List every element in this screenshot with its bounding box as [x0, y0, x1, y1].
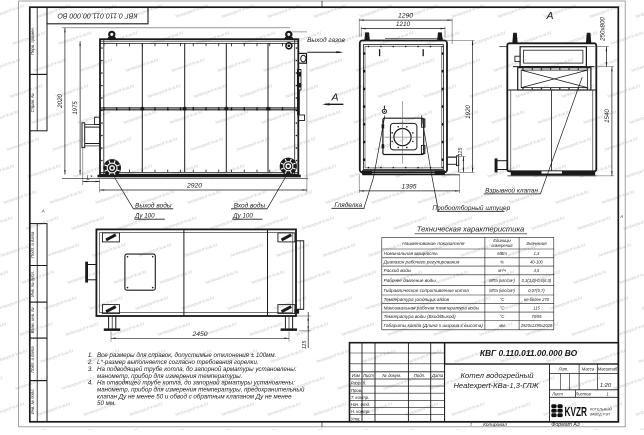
svg-text:1210: 1210: [396, 21, 411, 28]
svg-text:Рабочее давление воды: Рабочее давление воды: [384, 278, 437, 283]
svg-text:Т. контр.: Т. контр.: [351, 395, 370, 400]
svg-text:Перв. примен.: Перв. примен.: [30, 27, 35, 55]
svg-text:А: А: [619, 214, 623, 219]
svg-text:1540: 1540: [604, 109, 611, 123]
svg-text:Копировал: Копировал: [483, 422, 507, 428]
svg-text:1: 1: [606, 391, 608, 396]
svg-text:КВГ 0.110.011.00.000 ВО: КВГ 0.110.011.00.000 ВО: [480, 348, 578, 358]
svg-text:Лит.: Лит.: [558, 367, 569, 372]
svg-text:Heatexpert-КВа-1,3-ГЛЖ: Heatexpert-КВа-1,3-ГЛЖ: [453, 381, 539, 390]
svg-text:Вход воды: Вход воды: [234, 201, 266, 209]
svg-text:Пробоотборный штуцер: Пробоотборный штуцер: [432, 204, 510, 212]
svg-text:Номинальная мощность: Номинальная мощность: [384, 251, 439, 256]
svg-text:Техническая характеристика: Техническая характеристика: [417, 224, 525, 233]
svg-text:Температура воды (Вход/Выход): Температура воды (Вход/Выход): [384, 314, 457, 319]
svg-text:Ду 100: Ду 100: [232, 213, 253, 220]
svg-text:250х800: 250х800: [600, 17, 607, 42]
svg-text:Выход газов: Выход газов: [307, 36, 345, 44]
svg-text:Справ. №: Справ. №: [30, 93, 35, 112]
svg-text:Дата: Дата: [431, 373, 444, 378]
svg-text:70/95: 70/95: [531, 314, 542, 319]
svg-text:1:20: 1:20: [600, 383, 612, 389]
svg-text:Значение: Значение: [526, 241, 547, 247]
svg-text:Инв. № подл.: Инв. № подл.: [30, 388, 35, 414]
svg-text:40-100: 40-100: [530, 260, 543, 265]
svg-text:KVZR: KVZR: [565, 404, 588, 419]
svg-text:клапан Ду не менее 50 и обвод: клапан Ду не менее 50 и обвод с обратным…: [97, 393, 292, 400]
svg-text:4,5: 4,5: [534, 268, 540, 273]
svg-text:А: А: [545, 10, 553, 22]
svg-text:м³/ч: м³/ч: [498, 268, 506, 273]
svg-text:МВт: МВт: [497, 251, 507, 256]
svg-text:№ докум.: № докум.: [382, 373, 401, 378]
svg-text:1290: 1290: [398, 13, 413, 20]
svg-text:Разраб.: Разраб.: [351, 381, 367, 386]
svg-text:2450: 2450: [191, 331, 207, 338]
svg-text:Взам. инв. №: Взам. инв. №: [30, 307, 35, 333]
svg-text:2920: 2920: [186, 183, 202, 190]
svg-text:Инв. № дубл.: Инв. № дубл.: [30, 271, 35, 297]
svg-text:Выход воды: Выход воды: [135, 201, 172, 209]
svg-text:Масштаб: Масштаб: [598, 367, 618, 372]
svg-text:1395: 1395: [401, 184, 416, 191]
svg-text:%: %: [500, 260, 504, 265]
svg-text:КВГ 0.110.011.00.000 ВО: КВГ 0.110.011.00.000 ВО: [57, 11, 137, 18]
svg-text:Подп. и дата: Подп. и дата: [30, 231, 35, 258]
svg-text:Нач. отд.: Нач. отд.: [351, 402, 370, 407]
svg-text:Расход воды: Расход воды: [384, 268, 412, 273]
svg-text:Пров.: Пров.: [351, 388, 362, 393]
svg-text:3.: 3.: [88, 366, 93, 373]
svg-text:Листов: Листов: [574, 391, 591, 396]
svg-text:Формат А3: Формат А3: [551, 422, 579, 428]
svg-text:А: А: [41, 209, 45, 214]
svg-text:°С: °С: [500, 305, 505, 310]
svg-text:Взрывной клапан: Взрывной клапан: [485, 186, 538, 194]
svg-text:1,3: 1,3: [534, 251, 540, 256]
svg-text:Максимальная рабочая температу: Максимальная рабочая температура воды: [384, 305, 480, 310]
svg-text:ЗАВОД РЭП: ЗАВОД РЭП: [590, 413, 611, 417]
svg-text:не более 270: не более 270: [524, 297, 550, 302]
svg-text:°С: °С: [500, 297, 505, 302]
svg-text:Подп. и дата: Подп. и дата: [30, 346, 35, 373]
svg-text:Наименование показателя: Наименование показателя: [402, 241, 465, 247]
svg-text:Диапазон рабочего регулировани: Диапазон рабочего регулирования: [383, 260, 460, 265]
svg-text:Утв.: Утв.: [351, 416, 361, 421]
svg-text:°С: °С: [500, 314, 505, 319]
svg-text:КОТЕЛЬНЫЙ: КОТЕЛЬНЫЙ: [590, 408, 612, 412]
svg-text:115: 115: [533, 305, 540, 310]
svg-text:2920х1395х2020: 2920х1395х2020: [520, 323, 553, 328]
svg-text:1920: 1920: [465, 105, 472, 119]
svg-text:0,07(0,7): 0,07(0,7): [528, 288, 545, 293]
svg-text:115: 115: [302, 341, 308, 349]
svg-text:А: А: [330, 92, 338, 104]
svg-text:Подп.: Подп.: [414, 373, 425, 378]
svg-text:МПа (кгс/см²): МПа (кгс/см²): [489, 278, 515, 283]
svg-text:мм: мм: [499, 323, 505, 328]
svg-text:Ду 100: Ду 100: [134, 213, 155, 220]
svg-text:0,3(3,0)-0,6(6,0): 0,3(3,0)-0,6(6,0): [522, 278, 552, 283]
svg-text:Гидравлическое сопротивление к: Гидравлическое сопротивление котла: [384, 288, 470, 293]
svg-text:1975: 1975: [73, 101, 79, 115]
svg-text:Температура уходящих газов: Температура уходящих газов: [384, 297, 450, 302]
svg-text:Котел водогрейный: Котел водогрейный: [460, 371, 534, 380]
svg-text:50 мм.: 50 мм.: [97, 400, 116, 407]
svg-text:2020: 2020: [57, 94, 64, 109]
svg-text:измерения: измерения: [492, 243, 514, 248]
svg-text:125: 125: [458, 148, 464, 157]
svg-text:Н. контр.: Н. контр.: [351, 409, 370, 414]
svg-text:Лист: Лист: [362, 373, 374, 378]
svg-text:Лист: Лист: [551, 391, 563, 396]
svg-text:Габариты котла (Длина х ширина: Габариты котла (Длина х ширина х высота): [384, 323, 484, 328]
svg-text:Гляделка: Гляделка: [334, 201, 362, 209]
svg-text:МПа (кгс/см²): МПа (кгс/см²): [489, 288, 515, 293]
svg-text:Масса: Масса: [582, 367, 595, 372]
svg-text:4.: 4.: [88, 380, 93, 387]
svg-text:Изм: Изм: [352, 373, 360, 378]
